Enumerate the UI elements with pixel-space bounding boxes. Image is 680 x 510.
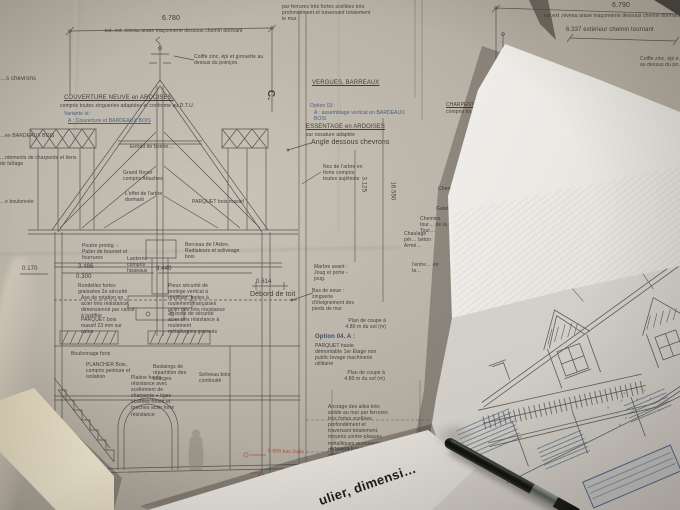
right-sheet-dimension-lines bbox=[0, 0, 680, 510]
frag-galets: Galets ou… bbox=[436, 206, 468, 212]
dim-6790: 6.790 bbox=[600, 2, 642, 10]
note-coiffe-frag: Coiffe zinc, épi e… au dessus du po… bbox=[640, 56, 680, 68]
frag-chemin: Chemin… bbox=[438, 186, 470, 192]
photo-of-blueprints: 6.780 est. ext. niveau arase maçonnerie … bbox=[0, 0, 680, 510]
dim-6790-label: ext.ext .niveau arase maçonnerie dessous… bbox=[542, 13, 680, 19]
frag-entre: l'entre… en la… bbox=[412, 262, 442, 274]
frag-chaulage: Chaulage pér… béton Armé… bbox=[404, 231, 440, 249]
dim-6337: 6.337 extérieur chemin tournant bbox=[566, 27, 680, 34]
